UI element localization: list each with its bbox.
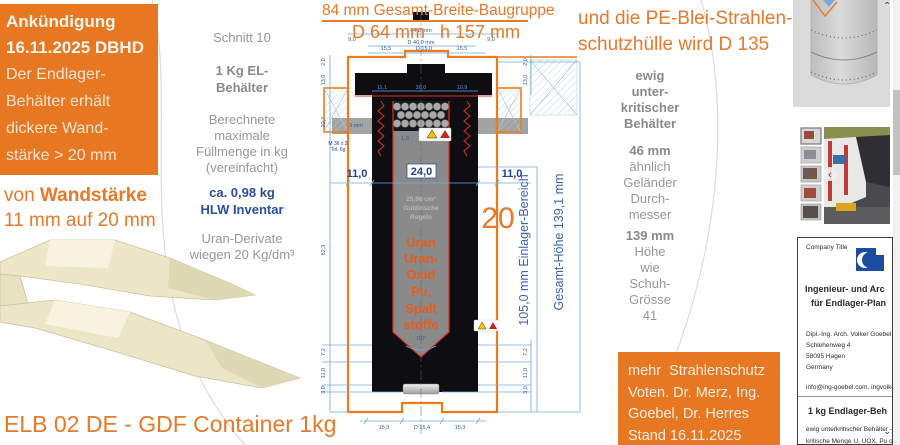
card-product: 1 kg Endlager-Beh [808,406,887,416]
scrollbar-thumb[interactable] [893,90,900,175]
page: 64,0 mm 9,0 9,0 D 46,0 mm 15,5 D 15,0 15… [0,0,900,445]
dim-label: 3,0 [321,386,327,394]
uranium-line: Uran-Derivate [172,231,312,247]
angle-label: 110° [416,336,426,342]
container-label: 1 Kg EL- Behälter [172,62,312,96]
core-guldin: Regeln [410,214,432,221]
pe-shield-note: und die PE-Blei-Strahlen- schutzhülle wi… [578,6,792,58]
card-email: info@ing-goebel.com, ingvolke [806,384,893,391]
company-logo [856,248,884,271]
gallery-thumbnails[interactable] [801,128,821,220]
thumbnail-5-content [803,206,818,218]
vote-line: Voten. Dr. Merz, Ing. [628,383,780,405]
gesamt-hoehe-label: Gesamt-Höhe 139,1 mm [552,174,566,311]
vote-line: Stand 16.11.2025 [628,426,780,445]
height-line: Höhe [600,244,700,260]
container-technical-drawing: 64,0 mm 9,0 9,0 D 46,0 mm 15,5 D 15,0 15… [300,0,600,445]
announcement-box: Ankündigung 16.11.2025 DBHD Der Endlager… [0,4,158,175]
dim-label: 11,0 [523,368,529,378]
card-headline-2: für Endlager-Plan [811,298,886,308]
dim-label: 11,1 [377,85,387,91]
fill-calc-note: Berechnete maximale Füllmenge in kg (ver… [172,112,312,176]
dim-label: 15,5 [381,46,392,52]
chevron-left-icon: ‹ [828,169,832,181]
card-country: Germany [806,364,833,371]
dim-label: 22,7 [321,117,327,128]
dim-label: 13,0 [523,75,529,86]
dim-label: 7,2 [321,348,327,356]
height-line: 41 [600,308,700,324]
diameter-line: Geländer [600,175,700,191]
vote-line: Goebel, Dr. Herres [628,404,780,426]
pe-shield-line: und die PE-Blei-Strahlen- [578,6,792,32]
subcritical-line: ewig [600,68,700,84]
vote-line: mehr Strahlenschutz [628,361,780,383]
dim-label: 3,0 [523,386,529,394]
core-dim: 24,0 [411,166,432,178]
announcement-body-line: dickere Wand- [6,115,158,142]
business-card: Company Title Ingenieur- und Arc für End… [797,237,893,445]
dim-label: 15,3 [455,425,466,431]
core-guldin: Guldinsche [403,205,439,212]
core-volume: 25,98 cm³ [406,196,436,203]
core-content: stoffe [403,317,438,332]
dim-label: D 15,4 [414,425,430,431]
inventory-line: HLW Inventar [172,201,312,218]
photo-gallery: ‹ [800,127,890,224]
diameter-line: ähnlich [600,159,700,175]
dim-label: 15,5 [457,46,468,52]
page-title: ELB 02 DE - GDF Container 1kg [4,411,336,438]
dim-label: 30,0 [416,85,427,91]
announcement-body-line: Der Endlager- [6,61,158,88]
card-street: Schlehenweg 4 [806,342,850,349]
diameter-line: Durch- [600,191,700,207]
inventory-line: ca. 0,98 kg [172,184,312,201]
uranium-line: wiegen 20 Kg/dm³ [172,247,312,263]
subcritical-note: ewig unter- kritischer Behälter [600,68,700,132]
dim-label: 11,0 [321,368,327,378]
announcement-body-line: Behälter erhält [6,88,158,115]
card-desc-line: ewig unterkritischer Behälter - [806,426,892,433]
height-line: Grösse [600,292,700,308]
radiation-warning-bottom [474,320,498,331]
announcement-title-1: Ankündigung [6,9,158,35]
card-desc-line: kritische Menge U, UOX, Pu o [806,438,893,445]
wall-note-bold: Wandstärke [40,185,147,206]
fill-calc-line: maximale [172,128,312,144]
diameter-line: messer [600,207,700,223]
wall-thickness-callout: 20 [481,202,514,235]
announcement-title-2: 16.11.2025 DBHD [6,35,158,61]
dim-label: 9 mm [349,123,363,129]
dim-label: D 15,0 [416,46,432,52]
core-content: Uran- [404,251,438,266]
card-person: Dipl.-Ing. Arch. Volker Goebel [806,331,891,338]
height-line: wie [600,260,700,276]
thumbnail-2-content [804,150,816,159]
core-content: Spalt [405,301,437,316]
announcement-body-line: stärke > 20 mm [6,142,158,169]
cylinder-body [811,0,877,84]
einlager-dim-label: 105,0 mm Einlager-Bereich [517,174,531,326]
height-analogy-note: 139 mm Höhe wie Schuh- Grösse 41 [600,228,700,324]
thumbnail-1-content [804,131,814,139]
vote-box: mehr Strahlenschutz Voten. Dr. Merz, Ing… [618,352,780,445]
dim-label: 15,3 [379,425,390,431]
dim-label: 2,0 [523,58,529,66]
wall-note-prefix: von [4,185,40,206]
drawing-subtitle: D 64 mm h 157 mm [352,22,520,43]
card-company-title: Company Title [806,244,848,251]
height-value: 139 mm [600,228,700,244]
fill-calc-line: (vereinfacht) [172,160,312,176]
gallery-back-button[interactable]: ‹ [823,167,837,181]
diameter-value: 46 mm [600,143,700,159]
container-3d-render[interactable] [793,0,890,107]
dim-label: 7,2 [523,348,529,356]
container-label-line: 1 Kg EL- [172,62,312,79]
subcritical-line: kritischer [600,100,700,116]
uranium-density-note: Uran-Derivate wiegen 20 Kg/dm³ [172,231,312,263]
thumbnail-3-content [803,168,817,179]
inventory-note: ca. 0,98 kg HLW Inventar [172,184,312,218]
card-divider [798,396,892,397]
radiation-warning-top [419,128,451,141]
drawing-title: 84 mm Gesamt-Breite-Baugruppe [322,2,555,20]
scroll-up-icon[interactable]: ˆ [885,0,889,14]
dim-label: 10,9 [457,85,468,91]
diameter-analogy-note: 46 mm ähnlich Geländer Durch- messer [600,143,700,223]
core-content: Uran [406,235,436,250]
core-content: Oxid [407,267,436,282]
height-line: Schuh- [600,276,700,292]
fill-calc-line: Füllmenge in kg [172,144,312,160]
thumbnail-4-content [804,188,816,198]
scrollbar-track[interactable] [893,0,900,445]
wall-thickness-note: von Wandstärke 11 mm auf 20 mm [4,183,156,233]
pe-shield-line: schutzhülle wird D 135 [578,32,792,58]
wall-note-line2: 11 mm auf 20 mm [4,208,156,233]
dim-label: 82,3 [321,245,327,256]
dim-label: 1,0 [401,136,409,142]
subcritical-line: unter- [600,84,700,100]
core-content: Pu, [411,284,431,299]
section-label: Schnitt 10 [172,30,312,45]
fill-calc-line: Berechnete [172,112,312,128]
thread-label: Tol. 6g [331,147,346,153]
subcritical-line: Behälter [600,116,700,132]
dim-label: 2,0 [321,58,327,66]
dim-label: 13,0 [321,75,327,86]
scroll-down-icon[interactable]: ˇ [885,430,889,444]
container-label-line: Behälter [172,79,312,96]
card-headline-1: Ingenieur- und Arc [805,284,885,294]
card-city: 58095 Hagen [806,353,845,360]
wall-dim-left: 11,0 [347,168,368,180]
